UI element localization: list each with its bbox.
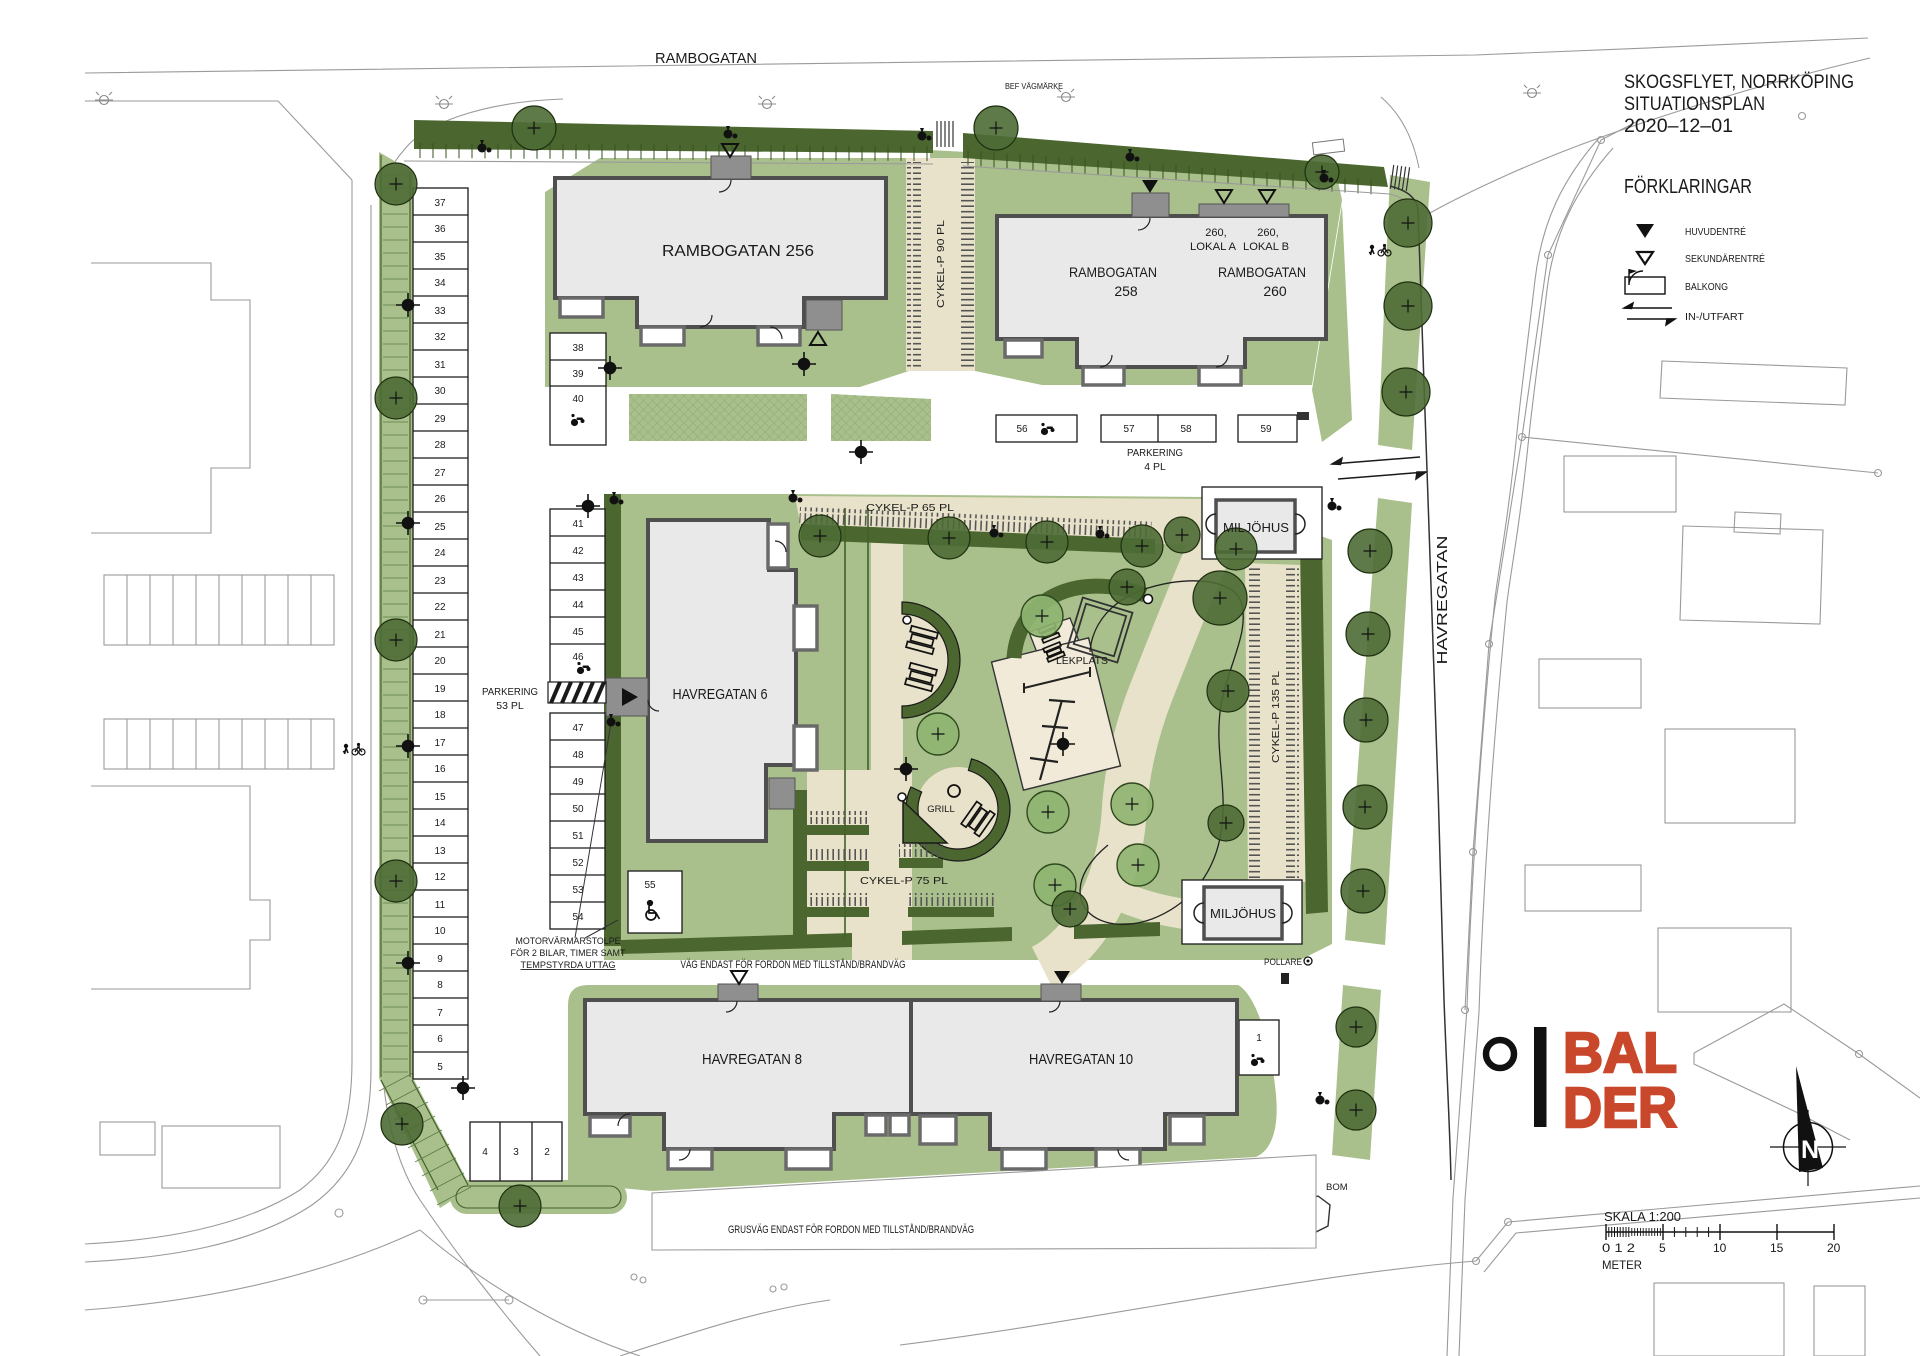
svg-text:35: 35 <box>434 252 446 263</box>
svg-text:17: 17 <box>434 738 446 749</box>
svg-text:21: 21 <box>434 630 446 641</box>
svg-text:14: 14 <box>434 818 446 829</box>
svg-text:2020–12–01: 2020–12–01 <box>1624 116 1733 137</box>
svg-text:260: 260 <box>1263 283 1287 299</box>
svg-text:58: 58 <box>1180 424 1192 435</box>
svg-text:VÄG ENDAST FÖR FORDON MED TILL: VÄG ENDAST FÖR FORDON MED TILLSTÅND/BRAN… <box>681 958 906 971</box>
svg-text:40: 40 <box>572 394 584 405</box>
svg-text:43: 43 <box>572 573 584 584</box>
svg-text:3: 3 <box>513 1147 519 1158</box>
svg-text:36: 36 <box>434 224 446 235</box>
svg-text:5: 5 <box>1659 1241 1666 1255</box>
svg-text:PARKERING: PARKERING <box>482 686 538 698</box>
svg-text:RAMBOGATAN: RAMBOGATAN <box>655 50 757 67</box>
svg-text:47: 47 <box>572 723 584 734</box>
svg-text:55: 55 <box>644 880 656 891</box>
svg-text:4: 4 <box>482 1147 488 1158</box>
svg-text:26: 26 <box>434 494 446 505</box>
svg-text:57: 57 <box>1123 424 1135 435</box>
svg-text:48: 48 <box>572 750 584 761</box>
svg-text:25: 25 <box>434 522 446 533</box>
svg-text:33: 33 <box>434 306 446 317</box>
svg-text:53 PL: 53 PL <box>496 700 524 712</box>
svg-text:HUVUDENTRÉ: HUVUDENTRÉ <box>1685 225 1746 238</box>
svg-text:9: 9 <box>437 954 443 965</box>
svg-text:HAVREGATAN 6: HAVREGATAN 6 <box>673 686 768 703</box>
svg-text:34: 34 <box>434 278 446 289</box>
svg-text:10: 10 <box>434 926 446 937</box>
svg-text:RAMBOGATAN 256: RAMBOGATAN 256 <box>662 243 814 260</box>
svg-text:CYKEL-P 75 PL: CYKEL-P 75 PL <box>860 875 948 887</box>
svg-text:4 PL: 4 PL <box>1144 461 1166 473</box>
svg-text:45: 45 <box>572 627 584 638</box>
svg-text:31: 31 <box>434 360 446 371</box>
svg-text:MILJÖHUS: MILJÖHUS <box>1223 521 1289 535</box>
svg-text:11: 11 <box>435 900 446 911</box>
svg-text:SEKUNDÄRENTRÉ: SEKUNDÄRENTRÉ <box>1685 252 1765 265</box>
svg-text:0 1 2: 0 1 2 <box>1602 1241 1635 1255</box>
svg-text:22: 22 <box>434 602 446 613</box>
svg-text:50: 50 <box>572 804 584 815</box>
svg-text:23: 23 <box>434 576 446 587</box>
svg-text:5: 5 <box>437 1062 443 1073</box>
svg-text:MILJÖHUS: MILJÖHUS <box>1210 907 1276 921</box>
svg-text:GRUSVÄG ENDAST FÖR FORDON MED: GRUSVÄG ENDAST FÖR FORDON MED TILLSTÅND/… <box>728 1223 974 1236</box>
svg-text:BEF VÄGMÄRKE: BEF VÄGMÄRKE <box>1005 82 1063 91</box>
svg-text:LOKAL A: LOKAL A <box>1190 241 1237 253</box>
svg-text:N: N <box>1801 1136 1819 1164</box>
svg-text:1: 1 <box>1256 1033 1262 1044</box>
svg-text:GRILL: GRILL <box>927 804 954 815</box>
svg-text:16: 16 <box>434 764 446 775</box>
svg-text:FÖR 2 BILAR, TIMER SAMT: FÖR 2 BILAR, TIMER SAMT <box>511 948 626 958</box>
svg-text:260,: 260, <box>1257 227 1278 239</box>
svg-text:24: 24 <box>434 548 446 559</box>
svg-text:59: 59 <box>1260 424 1272 435</box>
svg-text:MOTORVÄRMARSTOLPE: MOTORVÄRMARSTOLPE <box>516 936 621 946</box>
svg-text:39: 39 <box>572 369 584 380</box>
svg-text:19: 19 <box>434 684 446 695</box>
svg-text:10: 10 <box>1713 1241 1727 1255</box>
svg-text:RAMBOGATAN: RAMBOGATAN <box>1218 264 1306 280</box>
svg-text:POLLARE: POLLARE <box>1264 957 1302 968</box>
svg-text:258: 258 <box>1114 283 1138 299</box>
svg-text:LEKPLATS: LEKPLATS <box>1056 655 1108 667</box>
svg-text:18: 18 <box>434 710 446 721</box>
svg-text:51: 51 <box>572 831 584 842</box>
svg-text:6: 6 <box>437 1034 443 1045</box>
svg-text:BOM: BOM <box>1326 1182 1348 1193</box>
svg-text:PARKERING: PARKERING <box>1127 447 1183 459</box>
svg-text:44: 44 <box>572 600 584 611</box>
svg-text:20: 20 <box>1827 1241 1841 1255</box>
svg-text:42: 42 <box>572 546 584 557</box>
svg-text:BALKONG: BALKONG <box>1685 281 1728 293</box>
svg-text:30: 30 <box>434 386 446 397</box>
svg-text:HAVREGATAN 10: HAVREGATAN 10 <box>1029 1051 1133 1068</box>
svg-text:27: 27 <box>434 468 446 479</box>
svg-text:12: 12 <box>434 872 446 883</box>
svg-text:RAMBOGATAN: RAMBOGATAN <box>1069 264 1157 280</box>
svg-text:28: 28 <box>434 440 446 451</box>
svg-text:20: 20 <box>434 656 446 667</box>
svg-text:260,: 260, <box>1205 227 1226 239</box>
svg-text:HAVREGATAN: HAVREGATAN <box>1434 536 1451 665</box>
svg-text:7: 7 <box>437 1008 443 1019</box>
svg-text:52: 52 <box>572 858 584 869</box>
svg-text:38: 38 <box>572 343 584 354</box>
svg-text:32: 32 <box>434 332 446 343</box>
svg-text:HAVREGATAN 8: HAVREGATAN 8 <box>702 1051 802 1068</box>
svg-text:IN-/UTFART: IN-/UTFART <box>1685 311 1745 323</box>
svg-text:CYKEL-P 135 PL: CYKEL-P 135 PL <box>1270 671 1282 763</box>
svg-text:13: 13 <box>434 846 446 857</box>
svg-text:SKOGSFLYET, NORRKÖPING: SKOGSFLYET, NORRKÖPING <box>1624 72 1854 93</box>
svg-text:DER: DER <box>1563 1076 1677 1140</box>
svg-text:37: 37 <box>434 198 446 209</box>
svg-text:15: 15 <box>1770 1241 1784 1255</box>
svg-text:41: 41 <box>572 519 584 530</box>
svg-text:8: 8 <box>437 980 443 991</box>
svg-text:29: 29 <box>434 414 446 425</box>
svg-text:CYKEL-P 90 PL: CYKEL-P 90 PL <box>935 220 947 308</box>
svg-text:LOKAL B: LOKAL B <box>1243 241 1289 253</box>
svg-text:56: 56 <box>1016 424 1028 435</box>
svg-text:METER: METER <box>1602 1258 1642 1272</box>
svg-text:46: 46 <box>572 652 584 663</box>
svg-text:FÖRKLARINGAR: FÖRKLARINGAR <box>1624 176 1752 198</box>
svg-text:CYKEL-P 65 PL: CYKEL-P 65 PL <box>866 502 954 514</box>
svg-text:TEMPSTYRDA UTTAG: TEMPSTYRDA UTTAG <box>521 960 616 970</box>
svg-text:15: 15 <box>434 792 446 803</box>
svg-text:49: 49 <box>572 777 584 788</box>
svg-text:SKALA 1:200: SKALA 1:200 <box>1604 1209 1681 1224</box>
svg-text:2: 2 <box>544 1147 550 1158</box>
svg-text:SITUATIONSPLAN: SITUATIONSPLAN <box>1624 94 1765 115</box>
